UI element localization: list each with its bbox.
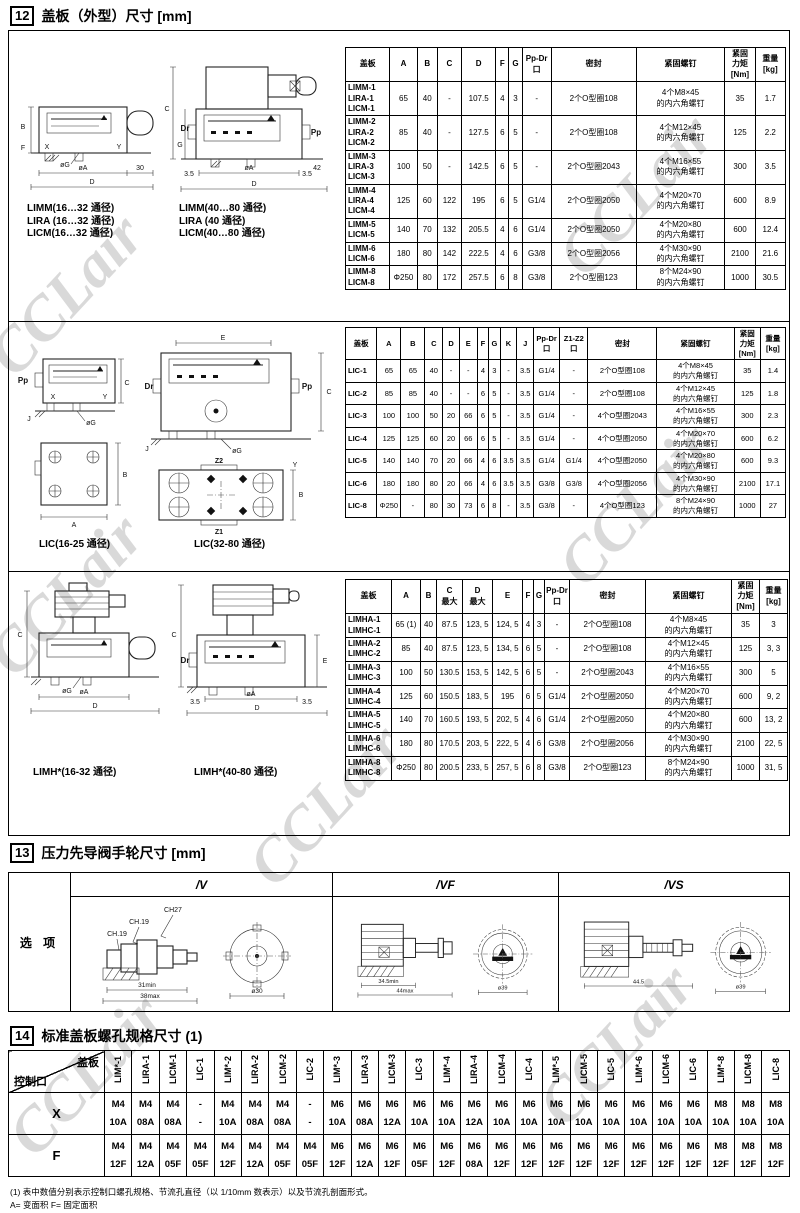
value-cell: 2100 <box>734 472 760 495</box>
dim-label: CH27 <box>164 907 182 914</box>
column-header: 重量 [kg] <box>760 328 785 360</box>
dim-label: B <box>21 124 26 131</box>
value-cell: 142.5 <box>462 150 496 184</box>
value-cell: G1/4 <box>534 427 560 450</box>
port-label-z2: Z2 <box>215 458 223 465</box>
model-column-label: LIC-8 <box>771 1058 781 1081</box>
spec-cell: M408A <box>159 1093 186 1135</box>
section14-header: 14 标准盖板螺孔规格尺寸 (1) <box>10 1026 202 1046</box>
value-cell: 8.9 <box>755 184 785 218</box>
table-row: LIC-1656540--43-3.5G1/4-2个O型圈1084个M8×45 … <box>346 360 786 383</box>
value-cell: 40 <box>417 82 437 116</box>
section-number: 12 <box>10 6 34 26</box>
value-cell: 180 <box>390 242 417 266</box>
value-cell: 600 <box>732 685 760 709</box>
value-cell: 66 <box>459 450 477 473</box>
value-cell: 6 <box>496 266 509 290</box>
column-header: B <box>401 328 425 360</box>
value-cell: 1000 <box>734 495 760 518</box>
value-cell: 20 <box>443 405 460 428</box>
option-row-label: 选 项 <box>9 873 71 1011</box>
value-cell: 193, 5 <box>463 709 493 733</box>
value-cell: 172 <box>437 266 461 290</box>
value-cell: 50 <box>421 661 437 685</box>
column-header: E <box>493 580 523 614</box>
value-cell: - <box>401 495 425 518</box>
model-column-header: LICM-2 <box>269 1051 296 1093</box>
spec-cell: M612F <box>598 1135 625 1177</box>
table-row: LIMHA-4 LIMHC-412560150.5183, 519565G1/4… <box>346 685 788 709</box>
spec-cell: M405F <box>296 1135 323 1177</box>
model-cell: LIC-6 <box>346 472 377 495</box>
column-header: 紧固螺钉 <box>657 328 734 360</box>
dim-label: Y <box>103 394 108 401</box>
dim-label: 3.5 <box>302 699 312 706</box>
value-cell: 3 <box>534 614 545 638</box>
model-column-header: LIC-6 <box>680 1051 707 1093</box>
value-cell: 3.5 <box>755 150 785 184</box>
column-header: B <box>421 580 437 614</box>
model-column-header: LIRA-4 <box>461 1051 488 1093</box>
model-column-header: LIC-3 <box>406 1051 433 1093</box>
thread-spec-table-wrap: 盖板控制口LIM*-1LIRA-1LICM-1LIC-1LIM*-2LIRA-2… <box>8 1050 790 1177</box>
port-label-pp: Pp <box>302 382 312 391</box>
dim-label: 3.5 <box>302 171 312 178</box>
model-cell: LIMM-5 LICM-5 <box>346 218 390 242</box>
model-column-header: LIM*-8 <box>707 1051 734 1093</box>
value-cell: 3.5 <box>500 472 517 495</box>
dimension-table: 盖板ABCDEFGKJPp-Dr 口Z1-Z2 口密封紧固螺钉紧固 力矩 [Nm… <box>345 327 786 518</box>
value-cell: 8个M24×90 的内六角螺钉 <box>657 495 734 518</box>
table-row: LIC-2858540--65-3.5G1/4-2个O型圈1084个M12×45… <box>346 382 786 405</box>
value-cell: 2个O型圈2056 <box>551 242 636 266</box>
port-row-label: X <box>9 1093 105 1135</box>
table-row: LIMM-2 LIRA-2 LICM-28540-127.565-2个O型圈10… <box>346 116 786 150</box>
value-cell: 5 <box>489 405 500 428</box>
port-row-label: F <box>9 1135 105 1177</box>
dim-label: Y <box>293 462 298 469</box>
value-cell: 233, 5 <box>463 756 493 780</box>
value-cell: 3.5 <box>517 405 534 428</box>
value-cell: 8 <box>534 756 545 780</box>
value-cell: 180 <box>377 472 401 495</box>
handwheel-table: 选 项 /V /VF /VS CH27 CH.19 CH.19 <box>8 872 790 1012</box>
dim-label: G <box>177 142 182 149</box>
variant-v-header: /V <box>71 873 333 897</box>
value-cell: 4个M12×45 的内六角螺钉 <box>646 637 732 661</box>
model-column-label: LIRA-4 <box>469 1055 479 1084</box>
spec-cell: M612F <box>543 1135 570 1177</box>
model-column-label: LIM*-4 <box>442 1056 452 1083</box>
dim-label: øG <box>62 688 72 695</box>
value-cell: 2个O型圈108 <box>551 116 636 150</box>
value-cell: 222, 5 <box>493 733 523 757</box>
value-cell: 4个O型圈123 <box>588 495 657 518</box>
value-cell: 2个O型圈2056 <box>570 733 646 757</box>
spec-cell: M610A <box>570 1093 597 1135</box>
value-cell: 4 <box>477 360 488 383</box>
dim-label: øG <box>86 420 96 427</box>
value-cell: 122 <box>437 184 461 218</box>
section-title: 盖板（外型）尺寸 [mm] <box>41 6 191 26</box>
value-cell: 35 <box>732 614 760 638</box>
model-column-label: LIC-1 <box>195 1058 205 1081</box>
spec-cell: M612F <box>625 1135 652 1177</box>
value-cell: 70 <box>417 218 437 242</box>
value-cell: 3.5 <box>517 360 534 383</box>
table-row: LIC-6180180802066463.53.5G3/8G3/84个O型圈20… <box>346 472 786 495</box>
value-cell: 87.5 <box>437 637 463 661</box>
spec-cell: M610A <box>433 1093 460 1135</box>
model-cell: LIMHA-6 LIMHC-6 <box>346 733 392 757</box>
value-cell: G1/4 <box>522 218 551 242</box>
spec-cell: M612A <box>461 1093 488 1135</box>
spec-cell: M612F <box>570 1135 597 1177</box>
spec-cell: M610A <box>406 1093 433 1135</box>
spec-cell: M612F <box>680 1135 707 1177</box>
value-cell: G1/4 <box>522 184 551 218</box>
value-cell: 8 <box>489 495 500 518</box>
dim-label: 44max <box>396 988 413 994</box>
value-cell: - <box>500 360 517 383</box>
catalog-page: CCLair CCLair CCLair CCLair CCLair CCLai… <box>0 0 800 1213</box>
model-cell: LIC-8 <box>346 495 377 518</box>
table-row: LIC-8Φ250-80307368-3.5G3/8-4个O型圈1238个M24… <box>346 495 786 518</box>
value-cell: 2个O型圈108 <box>570 637 646 661</box>
value-cell: 3 <box>509 82 522 116</box>
value-cell: 6 <box>523 661 534 685</box>
model-column-header: LIM*-3 <box>324 1051 351 1093</box>
table-row: LIMHA-3 LIMHC-310050130.5153, 5142, 565-… <box>346 661 788 685</box>
column-header: D <box>462 48 496 82</box>
value-cell: 66 <box>459 405 477 428</box>
dimension-table: 盖板ABCDFGPp-Dr 口密封紧固螺钉紧固 力矩 [Nm]重量 [kg]LI… <box>345 47 786 290</box>
model-column-header: LICM-3 <box>378 1051 405 1093</box>
value-cell: 6.2 <box>760 427 785 450</box>
spec-cell: M612F <box>433 1135 460 1177</box>
column-header: C <box>437 48 461 82</box>
value-cell: 40 <box>417 116 437 150</box>
value-cell: 30.5 <box>755 266 785 290</box>
value-cell: 600 <box>725 184 755 218</box>
dim-label: 30 <box>136 165 144 172</box>
value-cell: 130.5 <box>437 661 463 685</box>
value-cell: 202, 5 <box>493 709 523 733</box>
value-cell: 3 <box>760 614 788 638</box>
value-cell: 2个O型圈2050 <box>551 184 636 218</box>
value-cell: 22, 5 <box>760 733 788 757</box>
model-cell: LIMM-1 LIRA-1 LICM-1 <box>346 82 390 116</box>
value-cell: 4个M20×70 的内六角螺钉 <box>636 184 725 218</box>
dim-label: 44.5 <box>633 979 644 985</box>
drawing-caption: LIMH*(40-80 通径) <box>194 767 277 780</box>
value-cell: 125 <box>401 427 425 450</box>
value-cell: 4个M8×45 的内六角螺钉 <box>636 82 725 116</box>
value-cell: 3.5 <box>517 495 534 518</box>
value-cell: 107.5 <box>462 82 496 116</box>
dim-label: J <box>27 416 31 423</box>
value-cell: 4个O型圈2050 <box>588 450 657 473</box>
value-cell: 5 <box>534 637 545 661</box>
value-cell: 21.6 <box>755 242 785 266</box>
spec-cell: M612A <box>351 1135 378 1177</box>
model-column-header: LICM-5 <box>570 1051 597 1093</box>
dim-label: F <box>21 145 25 152</box>
value-cell: 65 <box>401 360 425 383</box>
value-cell: 3.5 <box>517 472 534 495</box>
value-cell: 80 <box>421 756 437 780</box>
column-header: E <box>459 328 477 360</box>
model-column-header: LIC-5 <box>598 1051 625 1093</box>
spec-cell: M412F <box>105 1135 132 1177</box>
value-cell: - <box>545 614 570 638</box>
dim-label: øA <box>80 689 89 696</box>
value-cell: 50 <box>417 150 437 184</box>
value-cell: 31, 5 <box>760 756 788 780</box>
column-header: 盖板 <box>346 48 390 82</box>
value-cell: G1/4 <box>545 685 570 709</box>
value-cell: - <box>443 382 460 405</box>
port-label-pp: Pp <box>18 376 28 385</box>
value-cell: 20 <box>443 427 460 450</box>
value-cell: - <box>522 150 551 184</box>
dim-label: C <box>164 106 169 113</box>
value-cell: 30 <box>443 495 460 518</box>
value-cell: 4个M12×45 的内六角螺钉 <box>657 382 734 405</box>
table-row: LIMHA-5 LIMHC-514070160.5193, 5202, 546G… <box>346 709 788 733</box>
value-cell: 4 <box>477 472 488 495</box>
value-cell: - <box>437 82 461 116</box>
model-column-label: LICM-6 <box>661 1054 671 1084</box>
spec-cell: M610A <box>324 1093 351 1135</box>
section12-body: B X Y øG øA 30 D F C <box>8 30 790 836</box>
column-header: 紧固 力矩 [Nm] <box>734 328 760 360</box>
model-column-header: LIC-2 <box>296 1051 323 1093</box>
value-cell: 125 <box>725 116 755 150</box>
value-cell: 3, 3 <box>760 637 788 661</box>
port-row: FM412FM412AM405FM405FM412FM412AM405FM405… <box>9 1135 790 1177</box>
model-cell: LIC-1 <box>346 360 377 383</box>
value-cell: 6 <box>534 733 545 757</box>
section-title: 压力先导阀手轮尺寸 [mm] <box>41 843 205 863</box>
value-cell: 1000 <box>732 756 760 780</box>
column-header: 盖板 <box>346 328 377 360</box>
model-cell: LIMM-4 LIRA-4 LICM-4 <box>346 184 390 218</box>
dim-label: 3.5 <box>190 699 200 706</box>
value-cell: 8个M24×90 的内六角螺钉 <box>636 266 725 290</box>
dim-label: D <box>254 705 259 712</box>
value-cell: G3/8 <box>522 242 551 266</box>
value-cell: 6 <box>477 405 488 428</box>
model-column-header: LICM-6 <box>652 1051 679 1093</box>
value-cell: - <box>522 82 551 116</box>
value-cell: 2个O型圈2050 <box>570 685 646 709</box>
dim-label: øA <box>247 691 256 698</box>
value-cell: 257, 5 <box>493 756 523 780</box>
spec-cell: M810A <box>707 1093 734 1135</box>
value-cell: 170.5 <box>437 733 463 757</box>
column-header: Pp-Dr 口 <box>522 48 551 82</box>
model-column-label: LIC-2 <box>305 1058 315 1081</box>
value-cell: 4个M30×90 的内六角螺钉 <box>657 472 734 495</box>
dim-label: X <box>45 144 50 151</box>
port-label-z1: Z1 <box>215 529 223 536</box>
spec-cell: M812F <box>762 1135 790 1177</box>
model-cell: LIMM-8 LICM-8 <box>346 266 390 290</box>
value-cell: 4个M20×80 的内六角螺钉 <box>646 709 732 733</box>
table-row: LIMM-3 LIRA-3 LICM-310050-142.565-2个O型圈2… <box>346 150 786 184</box>
value-cell: 6 <box>523 756 534 780</box>
value-cell: 600 <box>734 450 760 473</box>
value-cell: 80 <box>425 472 443 495</box>
value-cell: 4个M8×45 的内六角螺钉 <box>657 360 734 383</box>
model-cell: LIMHA-2 LIMHC-2 <box>346 637 392 661</box>
model-cell: LIMHA-3 LIMHC-3 <box>346 661 392 685</box>
model-column-label: LICM-5 <box>579 1054 589 1084</box>
port-row: XM410AM408AM408A--M410AM408AM408A--M610A… <box>9 1093 790 1135</box>
value-cell: 4个O型圈2050 <box>588 427 657 450</box>
model-column-label: LIM*-6 <box>634 1056 644 1083</box>
value-cell: 8 <box>509 266 522 290</box>
value-cell: 160.5 <box>437 709 463 733</box>
value-cell: 2.2 <box>755 116 785 150</box>
value-cell: 87.5 <box>437 614 463 638</box>
model-column-label: LIC-4 <box>524 1058 534 1081</box>
model-cell: LIMHA-5 LIMHC-5 <box>346 709 392 733</box>
value-cell: 257.5 <box>462 266 496 290</box>
value-cell: 140 <box>392 709 421 733</box>
section-number: 13 <box>10 843 34 863</box>
value-cell: 2.3 <box>760 405 785 428</box>
model-column-label: LICM-4 <box>497 1054 507 1084</box>
model-column-header: LICM-1 <box>159 1051 186 1093</box>
drawing-caption: LIMM(16…32 通径) LIRA (16…32 通径) LICM(16…3… <box>27 203 114 241</box>
value-cell: - <box>500 382 517 405</box>
value-cell: 600 <box>725 218 755 242</box>
value-cell: 6 <box>489 472 500 495</box>
value-cell: 3.5 <box>500 450 517 473</box>
value-cell: - <box>500 495 517 518</box>
column-header: 紧固螺钉 <box>636 48 725 82</box>
value-cell: 80 <box>425 495 443 518</box>
column-header: 盖板 <box>346 580 392 614</box>
dim-label: C <box>171 632 176 639</box>
limm-outline-drawing: B X Y øG øA 30 D F C <box>11 49 343 201</box>
model-cell: LIC-2 <box>346 382 377 405</box>
value-cell: 80 <box>417 266 437 290</box>
value-cell: 150.5 <box>437 685 463 709</box>
column-header: 密封 <box>588 328 657 360</box>
handwheel-vs-drawing: 44.5 ø39 <box>563 900 785 1008</box>
model-column-header: LIM*-1 <box>105 1051 132 1093</box>
value-cell: 6 <box>489 450 500 473</box>
value-cell: G3/8 <box>522 266 551 290</box>
model-column-label: LIC-6 <box>688 1058 698 1081</box>
handwheel-v-drawing: CH27 CH.19 CH.19 31min <box>77 898 327 1010</box>
value-cell: 2个O型圈108 <box>588 382 657 405</box>
column-header: K <box>500 328 517 360</box>
value-cell: 6 <box>523 637 534 661</box>
value-cell: - <box>500 427 517 450</box>
value-cell: 40 <box>425 382 443 405</box>
dim-label: C <box>17 632 22 639</box>
value-cell: - <box>560 405 588 428</box>
column-header: 密封 <box>570 580 646 614</box>
dim-label: ø39 <box>497 986 507 992</box>
dim-label: D <box>92 703 97 710</box>
value-cell: G1/4 <box>560 450 588 473</box>
value-cell: 60 <box>425 427 443 450</box>
value-cell: 65 <box>377 360 401 383</box>
value-cell: 4 <box>477 450 488 473</box>
value-cell: 2个O型圈2043 <box>551 150 636 184</box>
value-cell: 195 <box>493 685 523 709</box>
model-cell: LIMM-6 LICM-6 <box>346 242 390 266</box>
table-row: LIMHA-2 LIMHC-2854087.5123, 5134, 565-2个… <box>346 637 788 661</box>
value-cell: - <box>545 637 570 661</box>
value-cell: 4个M8×45 的内六角螺钉 <box>646 614 732 638</box>
value-cell: 132 <box>437 218 461 242</box>
value-cell: 2个O型圈108 <box>551 82 636 116</box>
model-cell: LIMHA-4 LIMHC-4 <box>346 685 392 709</box>
value-cell: 4个M30×90 的内六角螺钉 <box>646 733 732 757</box>
model-column-header: LIM*-5 <box>543 1051 570 1093</box>
table-row: LIMM-5 LICM-514070132205.546G1/42个O型圈205… <box>346 218 786 242</box>
corner-header: 盖板控制口 <box>9 1051 105 1093</box>
spec-cell: M812F <box>707 1135 734 1177</box>
dim-label: E <box>323 658 328 665</box>
value-cell: 6 <box>523 685 534 709</box>
table-row: LIC-412512560206665-3.5G1/4-4个O型圈20504个M… <box>346 427 786 450</box>
table-row: LIMM-4 LIRA-4 LICM-41256012219565G1/42个O… <box>346 184 786 218</box>
column-header: D <box>443 328 460 360</box>
column-header: D 最大 <box>463 580 493 614</box>
column-header: A <box>377 328 401 360</box>
value-cell: - <box>560 427 588 450</box>
value-cell: 127.5 <box>462 116 496 150</box>
value-cell: 600 <box>734 427 760 450</box>
spec-cell: M610A <box>598 1093 625 1135</box>
value-cell: G1/4 <box>534 405 560 428</box>
spec-cell: M610A <box>625 1093 652 1135</box>
limh-dim-table-wrap: 盖板ABC 最大D 最大EFGPp-Dr 口密封紧固螺钉紧固 力矩 [Nm]重量… <box>345 579 786 781</box>
value-cell: - <box>500 405 517 428</box>
spec-cell: M810A <box>762 1093 790 1135</box>
value-cell: 1.8 <box>760 382 785 405</box>
value-cell: 1000 <box>725 266 755 290</box>
value-cell: 6 <box>477 382 488 405</box>
column-header: Z1-Z2 口 <box>560 328 588 360</box>
value-cell: 70 <box>425 450 443 473</box>
value-cell: - <box>560 382 588 405</box>
section13-header: 13 压力先导阀手轮尺寸 [mm] <box>10 843 206 863</box>
column-header: A <box>392 580 421 614</box>
model-column-header: LIM*-4 <box>433 1051 460 1093</box>
column-header: 紧固 力矩 [Nm] <box>725 48 755 82</box>
table-row: LIMM-6 LICM-618080142222.546G3/82个O型圈205… <box>346 242 786 266</box>
value-cell: 4 <box>496 218 509 242</box>
value-cell: 50 <box>425 405 443 428</box>
spec-cell: M412F <box>214 1135 241 1177</box>
value-cell: 85 <box>401 382 425 405</box>
value-cell: 4个M16×55 的内六角螺钉 <box>657 405 734 428</box>
column-header: 重量 [kg] <box>755 48 785 82</box>
dim-label: D <box>89 179 94 186</box>
column-header: J <box>517 328 534 360</box>
spec-cell: M812F <box>734 1135 761 1177</box>
dim-label: Y <box>117 144 122 151</box>
value-cell: 85 <box>377 382 401 405</box>
